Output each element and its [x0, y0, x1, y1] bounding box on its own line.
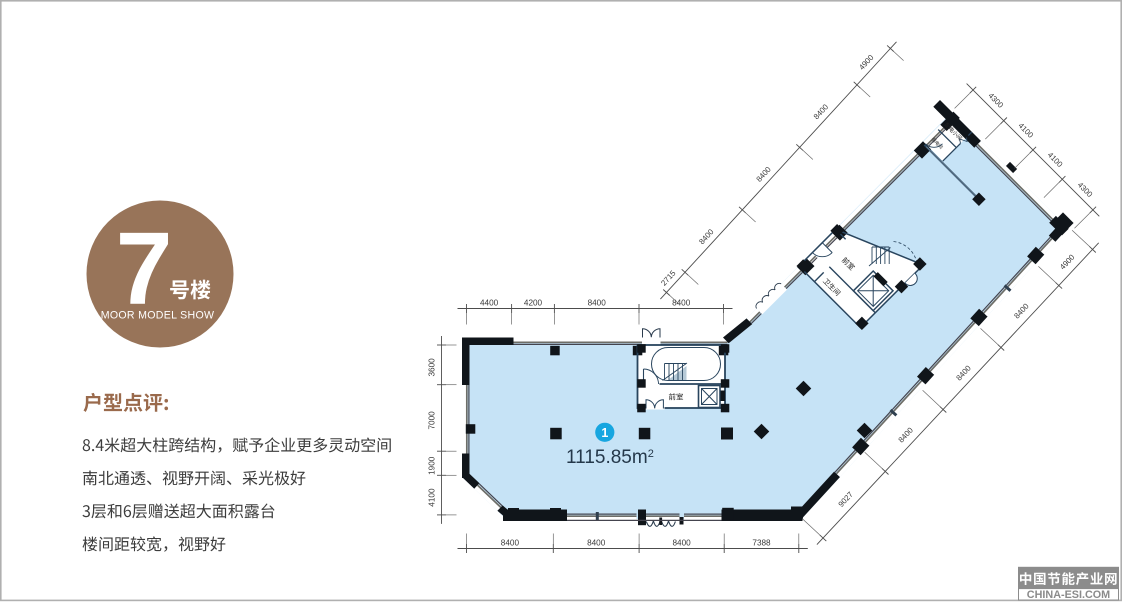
svg-text:1: 1 — [601, 426, 608, 440]
svg-text:8400: 8400 — [587, 539, 606, 548]
svg-text:4100: 4100 — [428, 488, 437, 507]
svg-text:8400: 8400 — [672, 539, 691, 548]
svg-text:7388: 7388 — [752, 539, 771, 548]
svg-text:4400: 4400 — [480, 299, 499, 308]
svg-text:1115.85m2: 1115.85m2 — [566, 447, 654, 468]
svg-text:4200: 4200 — [524, 299, 543, 308]
svg-text:3600: 3600 — [428, 358, 437, 377]
svg-text:8400: 8400 — [501, 539, 520, 548]
svg-text:MOOR MODEL SHOW: MOOR MODEL SHOW — [101, 310, 215, 322]
svg-text:CHINA-ESI.COM: CHINA-ESI.COM — [1027, 589, 1110, 601]
svg-text:7000: 7000 — [428, 411, 437, 430]
svg-text:1900: 1900 — [428, 456, 437, 475]
svg-text:8400: 8400 — [588, 299, 607, 308]
